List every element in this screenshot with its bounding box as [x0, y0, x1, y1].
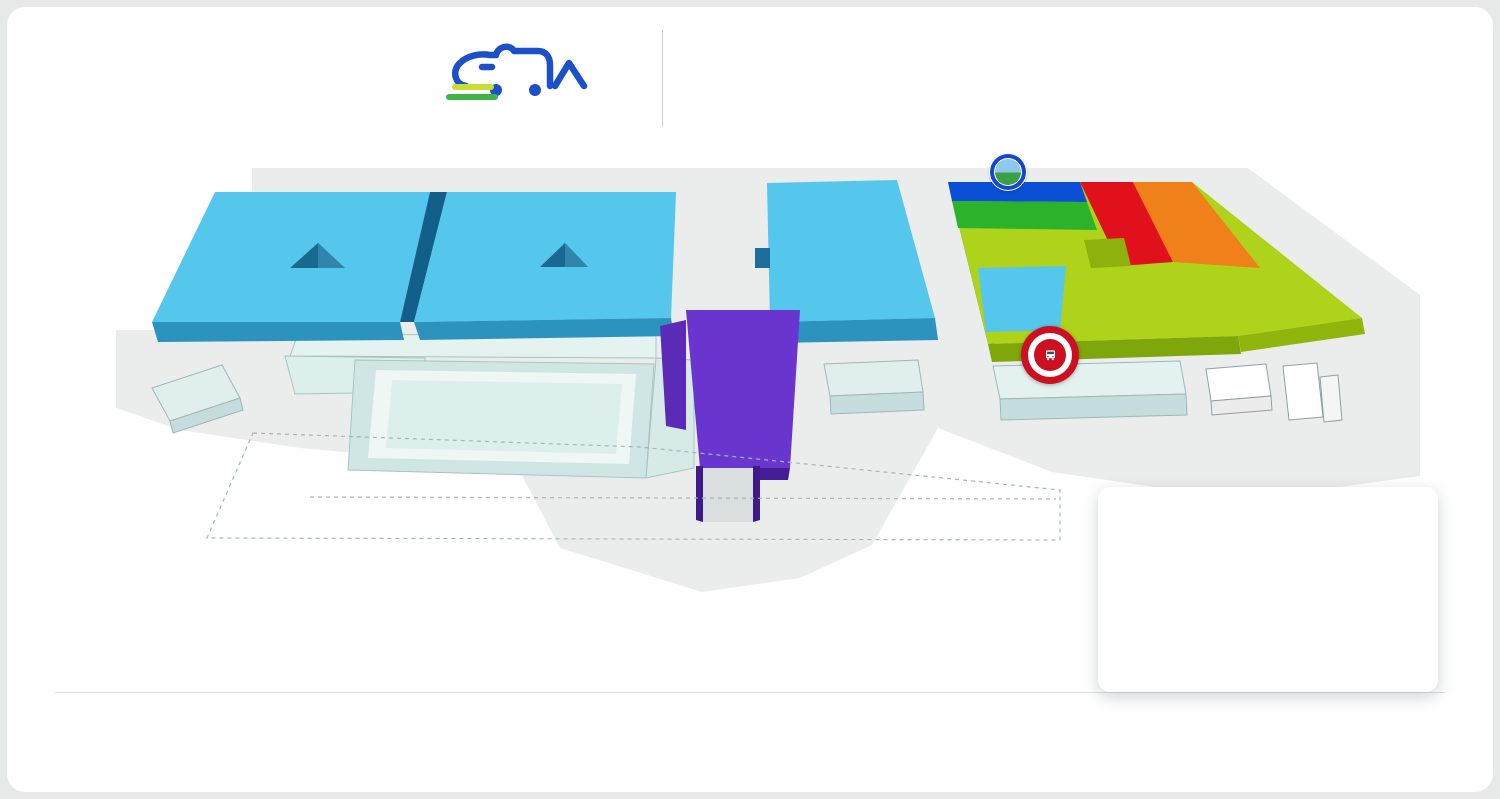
panel-title: [1122, 500, 1124, 518]
entertainment-activities-panel: [1098, 487, 1438, 692]
legend-separator: [55, 692, 1445, 693]
general-plan-page: [0, 0, 1500, 799]
